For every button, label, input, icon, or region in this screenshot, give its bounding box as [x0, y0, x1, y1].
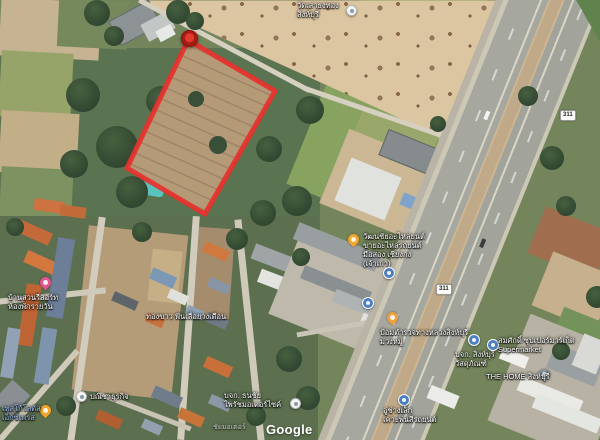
poi-layer: Google วัดเสาธงทองสิงห์บุรีบ้านสวนรีสอร์…: [0, 0, 600, 440]
poi-generic-1-icon[interactable]: [383, 267, 395, 279]
poi-highway-police-icon[interactable]: [385, 310, 401, 326]
poi-resort-icon[interactable]: [38, 275, 54, 291]
poi-garage-label[interactable]: อู่ช่างเล็กเคาะพ่นสีรถยนต์: [383, 406, 436, 424]
google-watermark: Google: [266, 422, 313, 437]
poi-garage-icon[interactable]: [398, 394, 410, 406]
poi-generic-2-icon[interactable]: [362, 297, 374, 309]
poi-motorcycle-dealer-label[interactable]: บจก. ธนชัยไพรัชมอเตอร์ไซค์: [224, 391, 281, 409]
poi-sawblade-shop-label[interactable]: ทองขาว ฟันเลื่อยวงเดือน: [146, 312, 226, 321]
poi-highway-police-label[interactable]: ป้อมตำรวจทางหลวงสิงห์บุรีม่วงหมู่: [380, 328, 468, 346]
poi-temple-label[interactable]: วัดเสาธงทองสิงห์บุรี: [297, 1, 339, 19]
poi-business-icon[interactable]: [76, 391, 87, 402]
poi-auto-parts-label[interactable]: วัฒนชัยอะไหล่ยนต์ขายอะไหล่รถยนต์มือสอง เ…: [363, 232, 425, 268]
poi-faint-label[interactable]: ชัยมอเตอร์: [213, 424, 246, 432]
route-shield-311[interactable]: 311: [436, 284, 452, 295]
poi-the-home-label[interactable]: THE HOME สิงห์บุรี: [486, 372, 550, 381]
route-shield-311[interactable]: 311: [560, 110, 576, 121]
poi-temple-icon[interactable]: [346, 5, 357, 16]
poi-materials-icon[interactable]: [468, 334, 480, 346]
poi-motorcycle-dealer-icon[interactable]: [290, 398, 301, 409]
poi-resort-label[interactable]: บ้านสวนรีสอร์ทห้องพักรายวัน: [8, 293, 58, 311]
poi-auto-parts-icon[interactable]: [346, 232, 362, 248]
poi-lotus-express-label[interactable]: เทสโก้โลตัสเอ็กซ์เพรส: [2, 404, 41, 422]
satellite-map[interactable]: Google วัดเสาธงทองสิงห์บุรีบ้านสวนรีสอร์…: [0, 0, 600, 440]
poi-supermarket-label[interactable]: สมศักดิ์ ซุปเปอร์มาร์เก็ตSupermarket: [498, 336, 575, 354]
poi-materials-label[interactable]: บจก. สิงห์บุรีวัสดุภัณฑ์: [455, 350, 495, 368]
poi-business-label[interactable]: ปณิชาธุรกิจ: [90, 392, 129, 401]
dropped-pin-marker[interactable]: [181, 30, 198, 47]
